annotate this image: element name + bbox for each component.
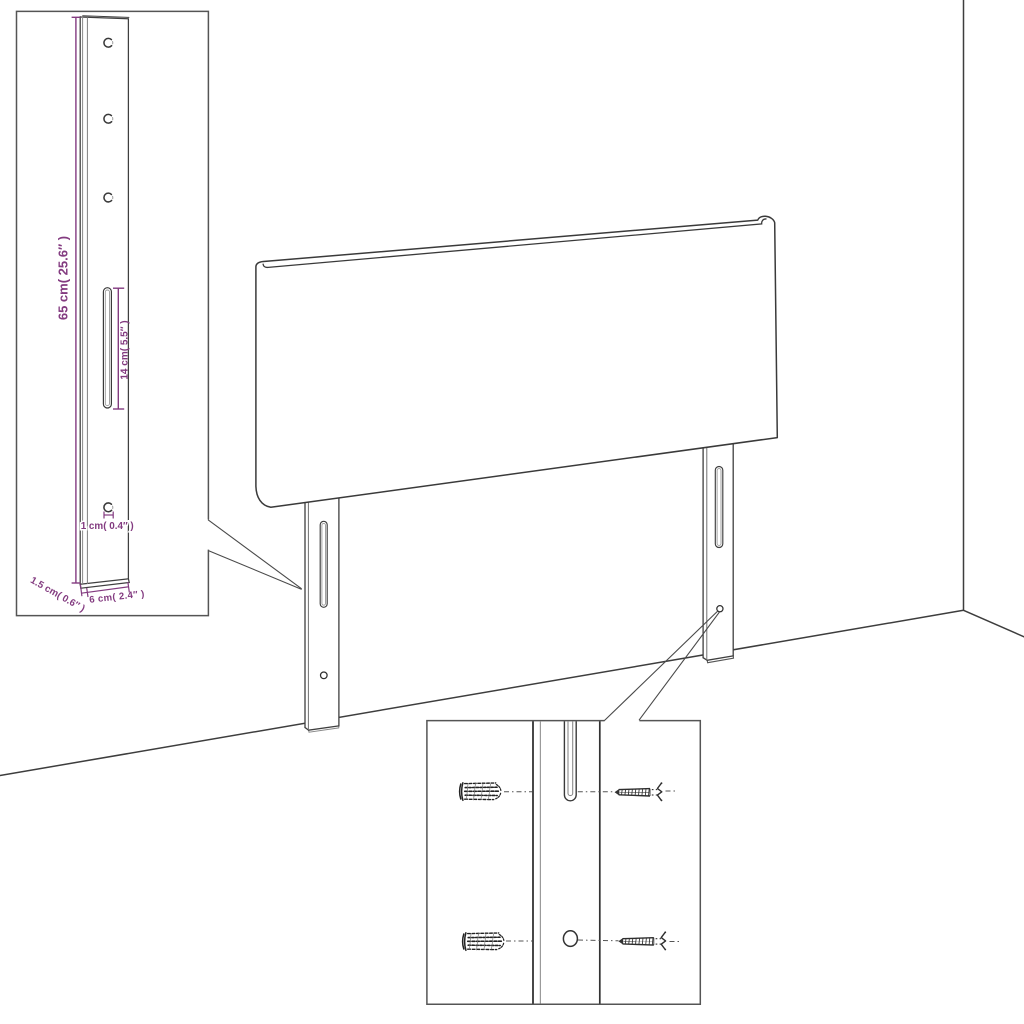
svg-text:65 cm( 25.6″ ): 65 cm( 25.6″ ): [56, 236, 71, 320]
svg-text:14 cm( 5.5″ ): 14 cm( 5.5″ ): [119, 320, 130, 379]
svg-text:1 cm( 0.4″ ): 1 cm( 0.4″ ): [81, 521, 134, 532]
